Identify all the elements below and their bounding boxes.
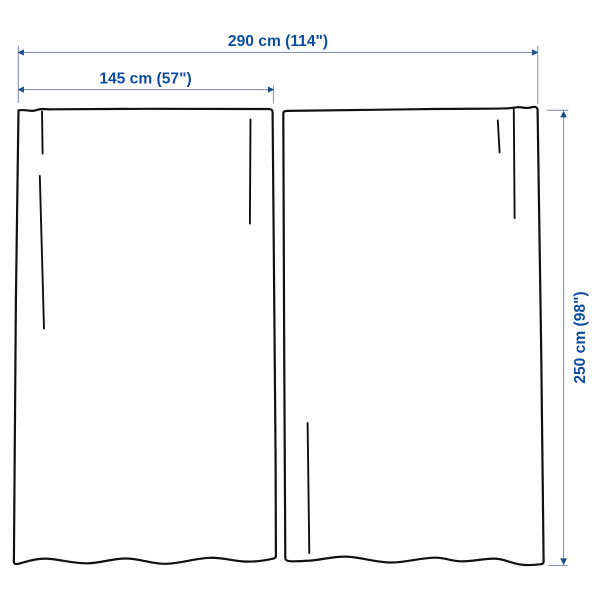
svg-text:250 cm (98"): 250 cm (98") [572, 291, 589, 383]
svg-text:145 cm (57"): 145 cm (57") [99, 71, 191, 88]
svg-text:290 cm (114"): 290 cm (114") [228, 33, 328, 50]
